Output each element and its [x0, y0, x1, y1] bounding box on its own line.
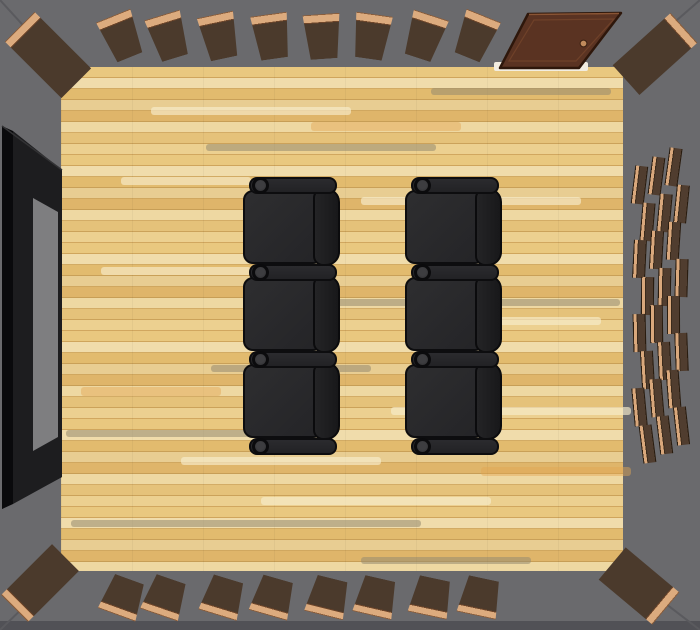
cupholder [252, 438, 269, 455]
scene-objects [0, 0, 700, 630]
recliner-backrest [475, 188, 502, 266]
cupholder [414, 264, 431, 281]
recliner-backrest [313, 188, 340, 266]
recliner-backrest [313, 362, 340, 440]
cupholder [414, 438, 431, 455]
recliner-seat-col2-row3 [405, 364, 485, 438]
room-top-view [0, 0, 700, 630]
recliner-seat-col1-row1 [243, 190, 323, 264]
door-top-highlight [529, 14, 619, 15]
screen-ridge [2, 126, 13, 509]
cupholder [252, 177, 269, 194]
recliner-seat-col2-row1 [405, 190, 485, 264]
cupholder [414, 177, 431, 194]
recliner-seat-col1-row2 [243, 277, 323, 351]
cupholder [252, 264, 269, 281]
door-panel [500, 13, 621, 68]
recliner-seat-col2-row2 [405, 277, 485, 351]
recliner-backrest [475, 275, 502, 353]
screen-surface [33, 198, 58, 451]
recliner-backrest [475, 362, 502, 440]
recliner-backrest [313, 275, 340, 353]
cupholder [252, 351, 269, 368]
recliner-seat-col1-row3 [243, 364, 323, 438]
cupholder [414, 351, 431, 368]
door-knob [580, 40, 587, 47]
